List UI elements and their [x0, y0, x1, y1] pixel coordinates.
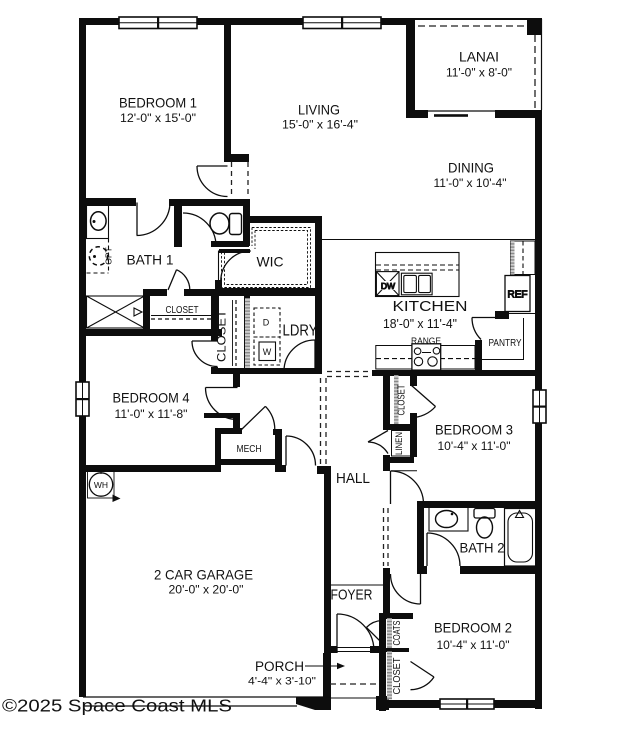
svg-text:BEDROOM 2: BEDROOM 2	[434, 620, 512, 636]
svg-text:WH: WH	[94, 480, 108, 490]
svg-text:LINEN: LINEN	[394, 432, 405, 455]
svg-text:CLOSET: CLOSET	[215, 309, 229, 362]
svg-text:BATH 1: BATH 1	[127, 252, 174, 268]
svg-text:©2025 Space Coast MLS: ©2025 Space Coast MLS	[2, 696, 232, 716]
svg-text:HALL: HALL	[336, 470, 370, 487]
svg-text:11'-0" x 11'-8": 11'-0" x 11'-8"	[115, 409, 188, 421]
svg-text:KITCHEN: KITCHEN	[393, 298, 468, 315]
svg-text:11'-0" x 8'-0": 11'-0" x 8'-0"	[446, 68, 512, 80]
svg-text:MECH: MECH	[237, 444, 262, 455]
svg-text:18'-0" x 11'-4": 18'-0" x 11'-4"	[383, 317, 457, 331]
svg-text:4'-4" x 3'-10": 4'-4" x 3'-10"	[248, 676, 316, 688]
svg-text:PORCH: PORCH	[255, 659, 304, 674]
svg-text:CLOSET: CLOSET	[166, 305, 199, 316]
svg-text:BEDROOM 1: BEDROOM 1	[119, 95, 197, 111]
svg-text:BEDROOM 4: BEDROOM 4	[113, 390, 190, 406]
svg-text:COATS: COATS	[392, 620, 403, 645]
svg-text:CLOSET: CLOSET	[396, 384, 408, 415]
svg-text:LANAI: LANAI	[459, 49, 499, 65]
svg-text:11'-0" x 10'-4": 11'-0" x 10'-4"	[434, 178, 507, 190]
svg-text:BEDROOM 3: BEDROOM 3	[435, 422, 513, 438]
svg-text:10'-4" x 11'-0": 10'-4" x 11'-0"	[437, 640, 510, 652]
svg-text:10'-4" x 11'-0": 10'-4" x 11'-0"	[438, 441, 511, 453]
svg-text:DW: DW	[381, 281, 395, 291]
svg-text:W: W	[263, 347, 272, 357]
svg-text:12'-0" x 15'-0": 12'-0" x 15'-0"	[120, 113, 196, 125]
svg-text:LIVING: LIVING	[298, 102, 340, 118]
svg-text:RANGE: RANGE	[411, 336, 441, 347]
svg-text:2 CAR GARAGE: 2 CAR GARAGE	[154, 567, 253, 583]
svg-text:D: D	[263, 318, 270, 328]
svg-text:CLOSET: CLOSET	[391, 657, 403, 695]
svg-text:REF: REF	[508, 290, 528, 301]
svg-text:DINING: DINING	[448, 160, 494, 176]
svg-text:OPT: OPT	[104, 247, 114, 264]
svg-text:LDRY: LDRY	[283, 323, 318, 340]
svg-text:BATH 2: BATH 2	[460, 540, 505, 556]
svg-text:FOYER: FOYER	[331, 587, 373, 604]
svg-text:15'-0" x 16'-4": 15'-0" x 16'-4"	[282, 120, 358, 132]
svg-text:WIC: WIC	[257, 254, 284, 270]
svg-text:PANTRY: PANTRY	[489, 338, 522, 349]
svg-text:20'-0" x 20'-0": 20'-0" x 20'-0"	[169, 585, 244, 597]
